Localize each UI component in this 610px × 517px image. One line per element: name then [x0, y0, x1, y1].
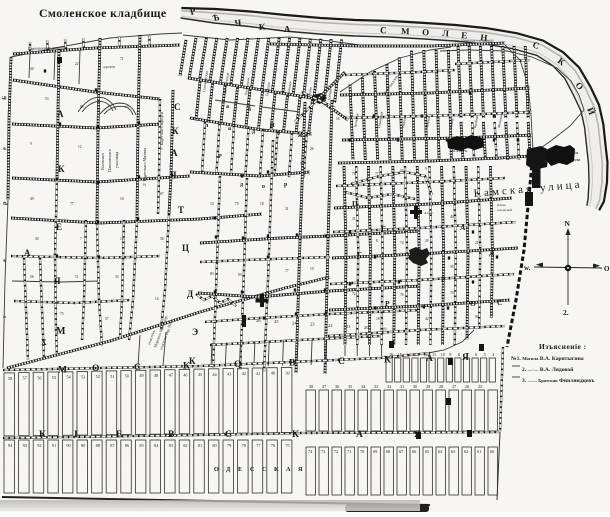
- svg-text:Смоленское кладбище: Смоленское кладбище: [39, 6, 167, 20]
- svg-text:М: М: [401, 26, 410, 36]
- svg-text:К: К: [384, 356, 391, 366]
- svg-text:С: С: [380, 25, 387, 35]
- svg-text:Алекс.: Алекс.: [424, 211, 434, 215]
- svg-text:7: 7: [80, 237, 82, 241]
- svg-text:Ц: Ц: [182, 243, 189, 253]
- svg-text:72: 72: [352, 292, 356, 296]
- svg-text:51: 51: [110, 374, 114, 379]
- svg-text:Р: Р: [218, 154, 222, 160]
- svg-text:21: 21: [475, 241, 479, 245]
- svg-text:44: 44: [30, 67, 34, 71]
- svg-text:1° Кадетскаго корпуса: 1° Кадетскаго корпуса: [159, 112, 164, 150]
- svg-text:9: 9: [30, 142, 32, 146]
- svg-text:73: 73: [60, 312, 64, 316]
- svg-text:79: 79: [227, 443, 231, 448]
- svg-text:Р: Р: [441, 275, 446, 284]
- svg-text:18: 18: [376, 317, 380, 321]
- svg-text:77: 77: [300, 162, 304, 166]
- svg-text:74: 74: [450, 291, 454, 295]
- svg-text:а: а: [228, 126, 231, 132]
- svg-text:Э: Э: [192, 327, 198, 337]
- svg-text:О: О: [470, 299, 476, 308]
- svg-text:35: 35: [348, 384, 352, 389]
- svg-text:В: В: [289, 358, 296, 368]
- svg-text:52: 52: [96, 374, 100, 379]
- svg-text:24: 24: [292, 320, 297, 325]
- svg-text:16: 16: [336, 117, 340, 121]
- svg-text:О: О: [604, 265, 610, 273]
- svg-text:К: К: [58, 164, 65, 174]
- svg-text:Б: Б: [2, 96, 8, 101]
- svg-text:67: 67: [160, 192, 164, 196]
- svg-text:26: 26: [310, 147, 314, 151]
- svg-text:31: 31: [400, 384, 404, 389]
- svg-text:80: 80: [212, 443, 216, 448]
- svg-text:56: 56: [450, 265, 454, 269]
- svg-text:дорожка: дорожка: [103, 65, 116, 69]
- svg-text:А: А: [426, 354, 433, 364]
- svg-text:10: 10: [210, 202, 214, 206]
- svg-text:К: К: [39, 430, 46, 440]
- svg-text:9: 9: [449, 352, 451, 357]
- svg-text:75: 75: [285, 443, 289, 448]
- svg-text:15: 15: [125, 105, 129, 109]
- svg-text:Я: Я: [462, 353, 469, 363]
- svg-text:2° Кадетскаго Митнча: 2° Кадетскаго Митнча: [142, 148, 147, 186]
- svg-text:А: А: [356, 430, 363, 440]
- svg-text:28: 28: [439, 384, 443, 389]
- svg-text:55: 55: [52, 375, 56, 380]
- svg-text:Р: Р: [385, 299, 390, 308]
- svg-text:Изъясненіе :: Изъясненіе :: [539, 342, 587, 351]
- svg-text:18: 18: [260, 202, 264, 206]
- svg-text:К: К: [258, 22, 266, 32]
- svg-text:Г: Г: [357, 250, 362, 259]
- svg-text:83: 83: [210, 272, 214, 276]
- svg-text:готова: готова: [570, 158, 581, 162]
- svg-text:39: 39: [285, 370, 289, 375]
- svg-text:Е: Е: [116, 430, 122, 440]
- svg-text:29: 29: [426, 384, 430, 389]
- svg-text:С: С: [174, 102, 181, 112]
- svg-text:С: С: [134, 363, 141, 373]
- svg-text:Е: Е: [381, 224, 386, 233]
- svg-text:дор. Немецкаго кладбища: дор. Немецкаго кладбища: [454, 38, 494, 43]
- svg-text:14: 14: [155, 297, 159, 301]
- svg-text:30: 30: [413, 384, 417, 389]
- svg-text:62: 62: [464, 449, 468, 454]
- svg-text:Д: Д: [489, 248, 495, 257]
- svg-text:училища: училища: [114, 152, 119, 168]
- svg-text:73: 73: [321, 449, 325, 454]
- svg-text:ж: ж: [298, 133, 303, 139]
- svg-text:Д: Д: [187, 289, 194, 299]
- svg-text:П: П: [352, 199, 358, 208]
- svg-text:А: А: [286, 466, 291, 473]
- svg-text:12: 12: [78, 145, 82, 149]
- svg-text:88: 88: [96, 443, 100, 448]
- svg-text:77: 77: [375, 172, 379, 176]
- svg-text:Д: Д: [226, 466, 231, 473]
- svg-text:91: 91: [52, 443, 56, 448]
- svg-text:23: 23: [310, 322, 315, 327]
- svg-text:А: А: [460, 223, 466, 232]
- svg-text:Х: Х: [41, 338, 47, 347]
- svg-text:О: О: [214, 466, 219, 473]
- svg-text:М.АТОРИ: М.АТОРИ: [452, 149, 468, 153]
- svg-text:53: 53: [45, 97, 49, 101]
- svg-text:Е: Е: [56, 222, 62, 232]
- svg-text:С: С: [225, 430, 232, 440]
- svg-text:83: 83: [238, 273, 242, 277]
- svg-text:5: 5: [484, 352, 486, 357]
- svg-text:60: 60: [490, 449, 494, 454]
- svg-text:Алекс: Алекс: [497, 203, 506, 207]
- svg-text:о: о: [277, 131, 280, 137]
- svg-text:Л: Л: [442, 28, 450, 38]
- svg-text:65: 65: [425, 449, 429, 454]
- svg-text:25: 25: [274, 319, 279, 324]
- svg-text:85: 85: [139, 443, 143, 448]
- svg-text:82: 82: [183, 443, 187, 448]
- svg-text:49: 49: [139, 373, 143, 378]
- svg-text:40: 40: [450, 215, 454, 219]
- svg-text:89: 89: [81, 443, 85, 448]
- svg-text:22: 22: [75, 62, 79, 66]
- svg-text:С: С: [250, 466, 254, 473]
- svg-text:78: 78: [242, 443, 246, 448]
- svg-text:58: 58: [8, 376, 12, 381]
- svg-text:сенія: сенія: [570, 151, 579, 155]
- svg-text:а: а: [226, 104, 229, 110]
- svg-text:70: 70: [360, 449, 364, 454]
- svg-text:75: 75: [235, 202, 239, 206]
- svg-text:92: 92: [37, 443, 41, 448]
- svg-text:40: 40: [271, 371, 275, 376]
- svg-text:53: 53: [81, 374, 85, 379]
- svg-text:26: 26: [256, 318, 261, 323]
- svg-text:49: 49: [30, 197, 34, 201]
- svg-text:31: 31: [285, 207, 289, 211]
- svg-text:61: 61: [477, 449, 481, 454]
- svg-text:10: 10: [310, 267, 314, 271]
- svg-text:А: А: [57, 109, 64, 119]
- svg-text:31: 31: [352, 217, 356, 221]
- svg-text:І: І: [74, 430, 78, 440]
- svg-text:30: 30: [35, 237, 39, 241]
- svg-text:№1. Могила В.А. Карятыгина: №1. Могила В.А. Карятыгина: [511, 356, 584, 362]
- svg-text:71: 71: [347, 449, 351, 454]
- svg-text:93: 93: [23, 443, 27, 448]
- svg-text:о: о: [262, 184, 265, 190]
- svg-text:Е: Е: [238, 466, 242, 473]
- svg-text:В: В: [168, 430, 175, 440]
- svg-text:С: С: [262, 466, 266, 473]
- svg-text:68: 68: [386, 449, 390, 454]
- svg-text:О: О: [422, 27, 430, 37]
- svg-text:К: К: [189, 356, 196, 366]
- svg-text:41: 41: [256, 371, 260, 376]
- svg-text:А: А: [284, 24, 291, 34]
- svg-text:М: М: [58, 365, 67, 375]
- svg-text:74: 74: [400, 241, 404, 245]
- svg-text:90: 90: [475, 315, 479, 319]
- svg-text:63: 63: [451, 449, 455, 454]
- svg-text:69: 69: [373, 449, 377, 454]
- svg-text:10: 10: [441, 352, 445, 357]
- svg-text:городской: городской: [497, 208, 512, 212]
- svg-text:w.: w.: [524, 264, 531, 272]
- svg-text:48: 48: [154, 373, 158, 378]
- svg-text:2.: 2.: [563, 308, 569, 317]
- svg-text:2. ―·― В.А. Лядовой: 2. ―·― В.А. Лядовой: [522, 366, 574, 373]
- svg-text:Я: Я: [298, 466, 303, 473]
- svg-text:Я: Я: [54, 276, 61, 286]
- svg-text:Н: Н: [270, 123, 275, 129]
- svg-text:д: д: [252, 129, 255, 135]
- svg-text:9: 9: [425, 167, 427, 171]
- svg-text:22: 22: [328, 323, 333, 328]
- svg-text:Павловскаго: Павловскаго: [107, 149, 112, 172]
- svg-text:42: 42: [425, 317, 429, 321]
- svg-text:д: д: [240, 182, 243, 188]
- svg-text:45: 45: [198, 372, 202, 377]
- svg-text:86: 86: [80, 105, 84, 109]
- svg-text:N: N: [565, 219, 571, 228]
- svg-text:90: 90: [66, 443, 70, 448]
- svg-text:81: 81: [198, 443, 202, 448]
- svg-text:О: О: [92, 364, 99, 374]
- svg-text:76: 76: [400, 293, 404, 297]
- svg-text:К: К: [183, 362, 190, 372]
- svg-text:50: 50: [125, 374, 129, 379]
- svg-text:21: 21: [346, 324, 351, 329]
- svg-text:Военнаго: Военнаго: [100, 153, 105, 170]
- svg-text:К: К: [172, 126, 179, 136]
- svg-text:15: 15: [398, 352, 402, 357]
- svg-text:58: 58: [160, 237, 164, 241]
- svg-text:71: 71: [120, 57, 124, 61]
- svg-text:14: 14: [120, 237, 124, 241]
- svg-text:б: б: [248, 106, 251, 113]
- svg-text:8: 8: [376, 239, 378, 243]
- svg-text:76: 76: [352, 172, 356, 176]
- svg-text:32: 32: [387, 384, 391, 389]
- svg-text:33: 33: [374, 384, 378, 389]
- svg-text:К: К: [292, 430, 299, 440]
- svg-text:25: 25: [478, 384, 482, 389]
- svg-text:53: 53: [400, 169, 404, 173]
- svg-text:72: 72: [334, 449, 338, 454]
- svg-text:С: С: [497, 298, 502, 307]
- svg-text:8: 8: [458, 352, 460, 357]
- svg-text:56: 56: [30, 275, 34, 279]
- svg-text:М: М: [56, 326, 66, 337]
- svg-text:43: 43: [227, 372, 231, 377]
- svg-text:83: 83: [169, 443, 173, 448]
- svg-text:38: 38: [309, 384, 313, 389]
- svg-text:42: 42: [242, 371, 246, 376]
- svg-text:Т: Т: [178, 205, 184, 215]
- svg-text:57: 57: [105, 317, 109, 321]
- svg-text:А: А: [24, 248, 31, 258]
- svg-text:С: С: [338, 357, 345, 367]
- svg-text:20: 20: [425, 239, 429, 243]
- svg-text:К: К: [274, 466, 279, 473]
- svg-text:11: 11: [75, 275, 79, 279]
- svg-text:13: 13: [415, 352, 419, 357]
- svg-text:А: А: [171, 148, 178, 158]
- svg-text:77: 77: [285, 269, 289, 273]
- svg-text:10: 10: [120, 197, 124, 201]
- svg-text:77: 77: [70, 202, 74, 206]
- svg-text:О: О: [234, 360, 241, 370]
- svg-text:33: 33: [115, 275, 119, 279]
